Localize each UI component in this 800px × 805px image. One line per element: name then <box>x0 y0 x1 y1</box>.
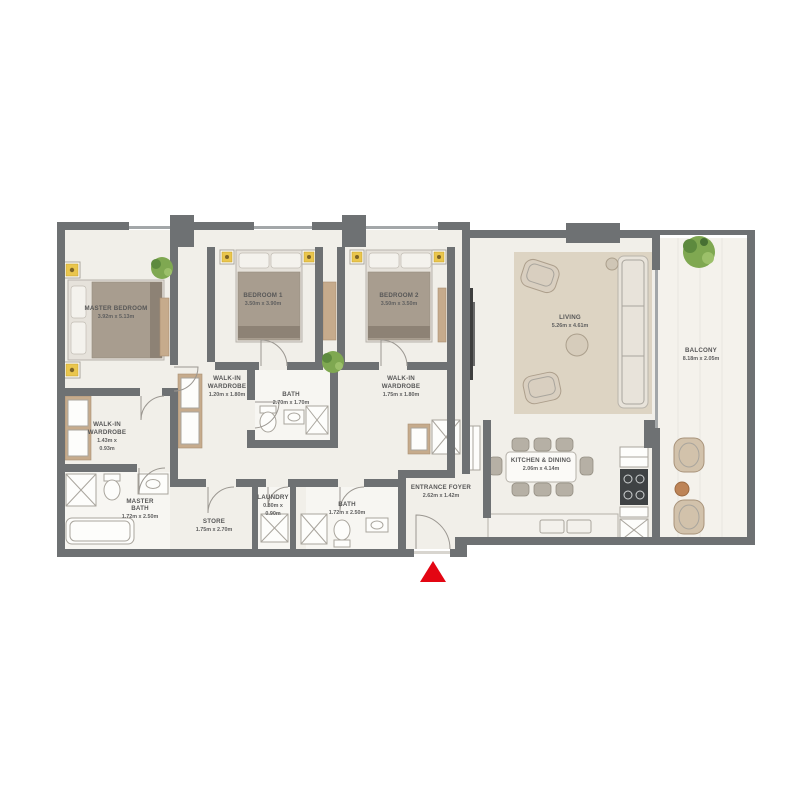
dresser <box>160 298 169 356</box>
wardrobe-shelf <box>181 412 199 444</box>
entrance-threshold <box>414 551 450 554</box>
wall-segment <box>462 222 470 474</box>
sliding-door-glass <box>655 270 658 428</box>
wall-segment <box>455 537 755 545</box>
window-icon <box>254 226 312 229</box>
dining-chair <box>534 438 551 451</box>
wiw1-label-line2: WARDROBE <box>208 383 246 390</box>
pillow <box>71 286 86 318</box>
kitchen-cabinet <box>620 507 648 517</box>
cooktop-oven <box>620 469 648 505</box>
wall-segment <box>290 487 296 549</box>
wall-segment <box>57 222 65 557</box>
wardrobe-shelf <box>411 428 427 450</box>
wall-segment <box>330 362 338 448</box>
tv-screen <box>473 302 475 366</box>
plant-foliage <box>702 252 714 264</box>
laundry-fixtures <box>261 514 288 542</box>
vanity <box>284 410 304 424</box>
wall-segment <box>194 222 254 230</box>
wiw1-label-line1: WALK-IN <box>213 375 241 382</box>
wardrobe-shelf <box>68 430 88 456</box>
balcony-label: BALCONY <box>685 347 718 354</box>
laundry-dims-line1: 0.80m x <box>263 503 283 509</box>
outdoor-table <box>675 482 689 496</box>
lamp-dot <box>307 255 311 259</box>
wall-segment <box>620 230 660 238</box>
master-bath-label-line1: MASTER <box>126 498 154 505</box>
kitchen-dining-label: KITCHEN & DINING <box>511 457 571 464</box>
dining-chair <box>580 457 593 475</box>
wall-segment <box>247 440 338 448</box>
toilet-icon <box>260 412 276 432</box>
miw-dims-line1: 1.43m x <box>97 438 117 444</box>
entrance-marker-icon <box>420 561 446 582</box>
dining-chair <box>556 483 573 496</box>
wall-segment <box>406 470 455 478</box>
dining-chair <box>534 483 551 496</box>
kitchen-counter <box>488 514 618 538</box>
lamp-dot <box>225 255 229 259</box>
wardrobe-shelf <box>68 400 88 426</box>
wall-column <box>342 215 366 247</box>
bed-throw <box>238 326 300 338</box>
balcony-dims: 8.18m x 2.05m <box>683 356 720 362</box>
master-bath-dims: 1.72m x 2.50m <box>122 514 159 520</box>
bedroom-2-label: BEDROOM 2 <box>379 292 419 299</box>
wardrobe-shelf <box>181 378 199 408</box>
wall-segment <box>170 390 178 487</box>
entrance-foyer-dims: 2.62m x 1.42m <box>423 493 460 499</box>
bathtub-icon <box>66 518 134 544</box>
bedroom-2-dims: 3.50m x 3.50m <box>381 301 418 307</box>
wall-segment <box>57 549 414 557</box>
wall-segment <box>65 388 140 396</box>
vanity <box>366 518 388 532</box>
master-bedroom-label: MASTER BEDROOM <box>85 305 148 312</box>
plant-foliage <box>335 362 343 370</box>
wall-segment <box>288 479 338 487</box>
wall-segment <box>247 362 255 400</box>
balcony-parapet <box>656 230 755 235</box>
bedroom-1-label: BEDROOM 1 <box>243 292 283 299</box>
floor-plan-page: MASTER BEDROOM 3.92m x 5.13m BEDROOM 1 3… <box>0 0 800 800</box>
plant-icon <box>322 351 344 373</box>
store-dims: 1.75m x 2.70m <box>196 527 233 533</box>
wall-segment <box>462 230 566 238</box>
wall-segment <box>345 362 379 370</box>
plant-foliage <box>700 238 708 246</box>
window-icon <box>129 226 170 229</box>
kitchen-dining <box>488 438 648 541</box>
lamp-dot <box>437 255 441 259</box>
living-dims: 5.26m x 4.61m <box>552 323 589 329</box>
living-label: LIVING <box>559 314 581 321</box>
wall-segment <box>747 230 755 545</box>
entrance-foyer-label: ENTRANCE FOYER <box>411 484 472 491</box>
wall-segment <box>315 247 323 370</box>
wall-segment <box>652 238 660 270</box>
plant-foliage <box>151 259 161 269</box>
lamp-dot <box>70 368 74 372</box>
miw-dims-line2: 0.93m <box>99 446 114 452</box>
plant-icon <box>151 257 173 279</box>
pillow <box>369 253 399 268</box>
wall-segment <box>483 420 491 518</box>
miw-label-line2: WARDROBE <box>88 429 126 436</box>
plant-foliage <box>164 268 172 276</box>
balcony-floor <box>656 238 747 537</box>
wall-segment <box>65 464 137 472</box>
wall-segment <box>57 222 129 230</box>
bedroom-1-dims: 3.50m x 3.90m <box>245 301 282 307</box>
wall-segment <box>337 247 345 370</box>
laundry-label: LAUNDRY <box>257 494 289 501</box>
toilet-icon <box>334 520 350 540</box>
wiw2-dims: 1.75m x 1.80m <box>383 392 420 398</box>
floor-plan-canvas: MASTER BEDROOM 3.92m x 5.13m BEDROOM 1 3… <box>0 0 800 800</box>
dresser <box>438 288 446 342</box>
master-bedroom-dims: 3.92m x 5.13m <box>98 314 135 320</box>
dining-chair <box>512 438 529 451</box>
bath2-label: BATH <box>338 501 356 508</box>
kitchen-dining-dims: 2.06m x 4.14m <box>523 466 560 472</box>
bath2-dims: 1.72m x 2.50m <box>329 510 366 516</box>
wall-segment <box>170 479 206 487</box>
pillow <box>71 322 86 354</box>
coffee-table <box>566 334 588 356</box>
wall-segment <box>644 420 656 448</box>
wall-column <box>170 215 194 247</box>
store-label: STORE <box>203 518 225 525</box>
bed-throw <box>368 326 430 338</box>
window-icon <box>366 226 438 229</box>
plant-foliage <box>322 353 332 363</box>
wardrobe-unit <box>323 282 336 340</box>
wall-column <box>566 223 620 243</box>
bath-dims: 2.70m x 1.70m <box>273 400 310 406</box>
bath-label: BATH <box>282 391 300 398</box>
wiw1-dims: 1.20m x 1.80m <box>209 392 246 398</box>
wall-segment <box>207 247 215 362</box>
wiw2-label-line2: WARDROBE <box>382 383 420 390</box>
dining-chair <box>512 483 529 496</box>
wall-segment <box>447 247 455 470</box>
vanity <box>138 474 168 494</box>
plant-icon <box>683 236 715 268</box>
dining-chair <box>556 438 573 451</box>
pillow <box>271 253 301 268</box>
lamp-dot <box>355 255 359 259</box>
wall-segment <box>312 222 342 230</box>
master-bath-label-line2: BATH <box>131 505 149 512</box>
side-table <box>606 258 618 270</box>
laundry-dims-line2: 0.90m <box>265 511 280 517</box>
master-walk-in-wardrobe <box>65 396 91 460</box>
wiw2-label-line1: WALK-IN <box>387 375 415 382</box>
wall-segment <box>398 470 406 549</box>
pillow <box>401 253 431 268</box>
pillow <box>239 253 269 268</box>
toilet-icon <box>104 480 120 500</box>
plant-foliage <box>683 239 697 253</box>
toilet-tank <box>334 540 350 547</box>
miw-label-line1: WALK-IN <box>93 421 121 428</box>
lamp-dot <box>70 268 74 272</box>
wall-segment <box>236 479 266 487</box>
